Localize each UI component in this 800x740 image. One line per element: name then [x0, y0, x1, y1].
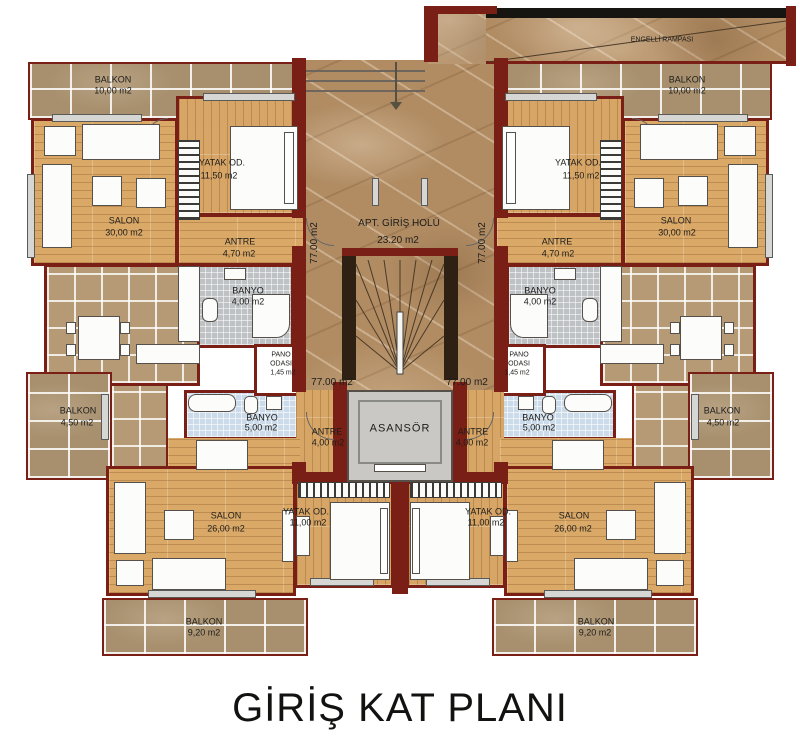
room-area: 4,70 m2: [223, 250, 256, 259]
sofa: [42, 164, 72, 248]
room-label: YATAK OD.: [555, 159, 601, 168]
armchair: [656, 560, 684, 586]
room-area: 4,00 m2: [312, 439, 345, 448]
wardrobe: [410, 482, 502, 498]
room-label: YATAK OD.: [465, 508, 511, 517]
room-label: SALON: [661, 217, 692, 226]
room-label: YATAK OD.: [199, 159, 245, 168]
floor-area-label-mid-right: 77.00 m2: [446, 378, 488, 388]
armchair: [44, 126, 76, 156]
kitchen-left-extension: [110, 384, 168, 476]
sink: [224, 268, 246, 280]
window: [101, 394, 109, 440]
window: [148, 590, 256, 598]
hall-upper-top-wall: [424, 6, 497, 14]
coffee-table: [606, 510, 636, 540]
room-label: BALKON: [704, 407, 741, 416]
coffee-table: [678, 176, 708, 206]
dining-table: [680, 316, 722, 360]
room-label: BALKON: [578, 618, 615, 627]
chair: [66, 322, 76, 334]
window: [544, 590, 652, 598]
sofa: [728, 164, 758, 248]
armchair: [116, 560, 144, 586]
room-label: BANYO: [246, 414, 278, 423]
wardrobe: [298, 482, 390, 498]
kitchen-counter: [136, 344, 200, 364]
window: [505, 93, 597, 101]
room-label: BANYO: [232, 287, 264, 296]
room-label: BALKON: [60, 407, 97, 416]
sofa: [114, 482, 146, 554]
room-label: SALON: [211, 512, 242, 521]
room-label: BALKON: [669, 76, 706, 85]
room-area: 4,50 m2: [61, 419, 94, 428]
sofa: [152, 558, 226, 590]
room-area: 4,70 m2: [542, 250, 575, 259]
room-label: BANYO: [524, 287, 556, 296]
entry-door-leaf: [421, 178, 428, 206]
sofa: [654, 482, 686, 554]
ramp-top-wall: [486, 8, 788, 18]
toilet: [582, 298, 598, 322]
room-area: 11,00 m2: [468, 519, 505, 528]
room-area: 11,50 m2: [563, 172, 600, 181]
toilet: [542, 396, 556, 414]
window: [27, 174, 35, 258]
room-area: 5,00 m2: [523, 424, 556, 433]
room-area: 11,00 m2: [290, 519, 327, 528]
wardrobe: [600, 140, 622, 220]
room-area: 26,00 m2: [554, 525, 592, 534]
elevator-door: [374, 464, 426, 472]
wardrobe: [178, 140, 200, 220]
room-area: 4,00 m2: [232, 298, 265, 307]
room-label: BALKON: [95, 76, 132, 85]
toilet: [244, 396, 258, 414]
hall-name-label: APT. GİRİŞ HOLÜ: [358, 219, 440, 229]
window: [765, 174, 773, 258]
pillow: [506, 132, 516, 204]
chair: [120, 344, 130, 356]
chair: [724, 322, 734, 334]
room-label: SALON: [109, 217, 140, 226]
tv-unit: [506, 510, 518, 562]
room-area: 26,00 m2: [207, 525, 245, 534]
armchair: [136, 178, 166, 208]
room-area: 30,00 m2: [658, 229, 696, 238]
dining-table: [78, 316, 120, 360]
kitchen-right-extension: [632, 384, 690, 476]
floor-plan: ENGELLİ RAMPASI: [0, 0, 800, 740]
room-area: 10,00 m2: [668, 87, 706, 96]
room-label: YATAK OD.: [283, 508, 329, 517]
toilet: [202, 298, 218, 322]
sofa: [640, 124, 718, 160]
room-label: BANYO: [522, 414, 554, 423]
kitchen-appliances: [600, 266, 622, 342]
room-area: 4,00 m2: [524, 298, 557, 307]
coffee-table: [92, 176, 122, 206]
room-label: PANO: [271, 352, 290, 359]
room-label: ANTRE: [312, 428, 343, 437]
chair: [670, 322, 680, 334]
ramp-label: ENGELLİ RAMPASI: [631, 37, 694, 44]
bedrooms-center-wall: [392, 480, 408, 594]
dining-table: [196, 440, 248, 470]
room-label: BALKON: [186, 618, 223, 627]
entry-axis-line: [395, 62, 397, 104]
window: [203, 93, 295, 101]
dining-table: [552, 440, 604, 470]
sofa: [82, 124, 160, 160]
entry-door-leaf: [372, 178, 379, 206]
chair: [670, 344, 680, 356]
room-area: 10,00 m2: [94, 87, 132, 96]
chair: [724, 344, 734, 356]
pillow: [284, 132, 294, 204]
bathtub: [188, 394, 236, 412]
elevator-label: ASANSÖR: [370, 424, 431, 435]
room-area: 9,20 m2: [579, 629, 612, 638]
window: [691, 394, 699, 440]
sink: [554, 268, 576, 280]
room-label: ANTRE: [542, 238, 573, 247]
room-area: 4,50 m2: [707, 419, 740, 428]
bathtub: [564, 394, 612, 412]
sink: [518, 396, 534, 410]
room-area: 11,50 m2: [201, 172, 238, 181]
room-area: 4,00 m2: [456, 439, 489, 448]
room-label: PANO: [509, 352, 528, 359]
kitchen-counter: [600, 344, 664, 364]
kitchen-appliances: [178, 266, 200, 342]
room-label: SALON: [559, 512, 590, 521]
room-label: ODASI: [508, 361, 530, 368]
room-label: ANTRE: [458, 428, 489, 437]
chair: [66, 344, 76, 356]
sofa: [574, 558, 648, 590]
room-area: 5,00 m2: [245, 424, 278, 433]
hall-area-label: 23.20 m2: [377, 236, 419, 246]
entry-step: [303, 70, 425, 72]
ramp-right-wall: [786, 6, 796, 66]
floor-area-label-mid-left: 77.00 m2: [311, 378, 353, 388]
chair: [120, 322, 130, 334]
sink: [266, 396, 282, 410]
window: [658, 114, 748, 122]
coffee-table: [164, 510, 194, 540]
room-area: 1,45 m2: [270, 370, 295, 377]
staircase: [342, 248, 458, 380]
pillow: [380, 508, 388, 574]
floor-area-label-right: 77.00 m2: [478, 222, 488, 264]
room-area: 9,20 m2: [188, 629, 221, 638]
armchair: [724, 126, 756, 156]
entry-step: [303, 80, 425, 82]
hall-upper-left-wall: [424, 6, 438, 62]
armchair: [634, 178, 664, 208]
room-label: ANTRE: [225, 238, 256, 247]
room-area: 1,45 m2: [504, 370, 529, 377]
page-title: GİRİŞ KAT PLANI: [232, 686, 568, 731]
pillow: [412, 508, 420, 574]
entry-arrow-icon: [390, 102, 402, 116]
room-area: 30,00 m2: [105, 229, 143, 238]
floor-area-label-left: 77.00 m2: [310, 222, 320, 264]
room-label: ODASI: [270, 361, 292, 368]
entry-step: [303, 90, 425, 92]
window: [52, 114, 142, 122]
